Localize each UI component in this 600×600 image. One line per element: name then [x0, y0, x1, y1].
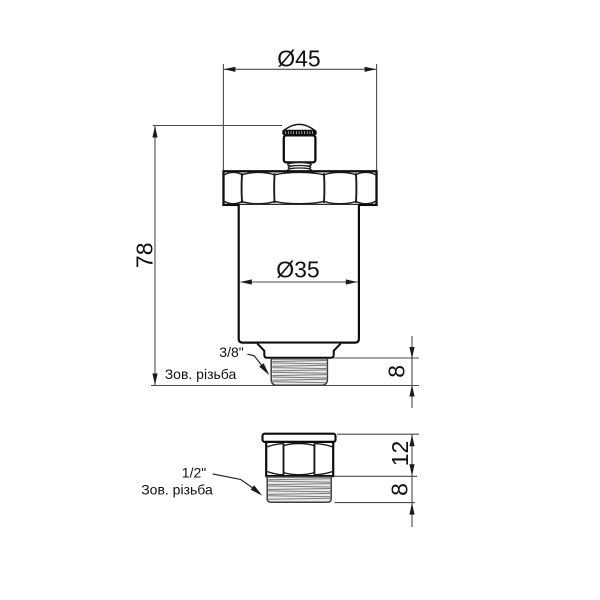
svg-text:Зов. різьба: Зов. різьба: [165, 366, 237, 382]
svg-text:8: 8: [384, 365, 410, 378]
svg-text:8: 8: [387, 483, 413, 496]
svg-text:1/2": 1/2": [182, 465, 206, 481]
svg-text:12: 12: [387, 441, 413, 467]
svg-text:3/8": 3/8": [219, 344, 243, 360]
svg-text:78: 78: [132, 243, 158, 269]
svg-text:Ø45: Ø45: [277, 46, 320, 72]
svg-text:Зов. різьба: Зов. різьба: [141, 482, 213, 498]
svg-text:Ø35: Ø35: [276, 256, 319, 282]
